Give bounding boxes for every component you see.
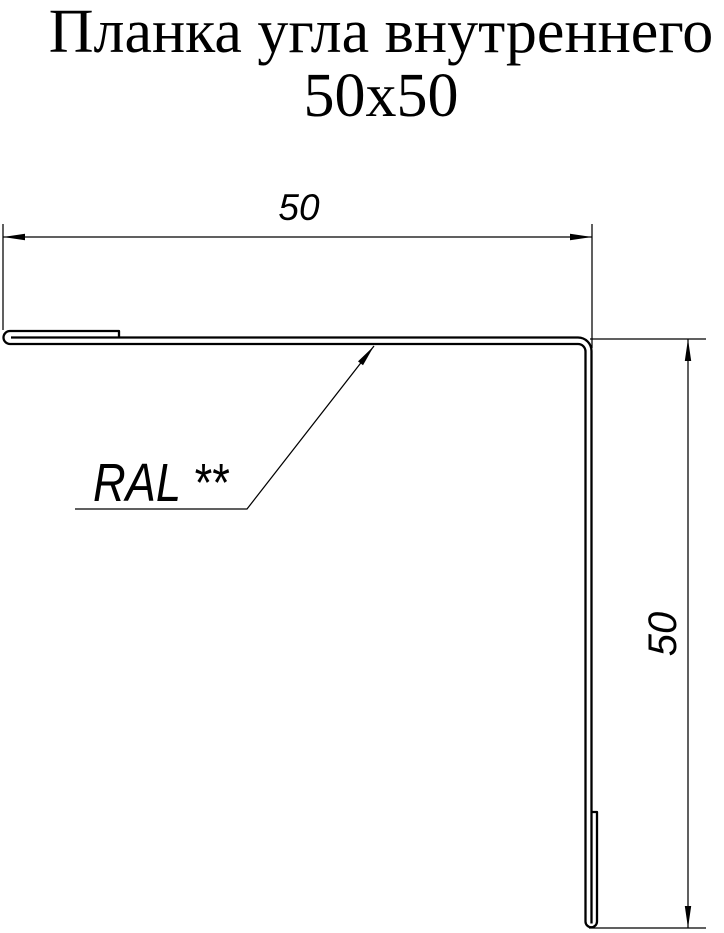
arrow-up-icon [685, 339, 691, 361]
drawing-sheet: Планка угла внутреннего 50х50 50 50 [0, 0, 724, 933]
profile-inner-contour [4, 331, 598, 927]
dimension-horizontal-value: 50 [278, 187, 320, 228]
profile-outer-contour [11, 338, 592, 924]
coating-callout: RAL ** [75, 346, 374, 513]
dimension-horizontal: 50 [3, 187, 592, 348]
leader-arrow-icon [358, 346, 374, 365]
arrow-right-icon [570, 234, 592, 240]
arrow-left-icon [3, 234, 25, 240]
technical-drawing-canvas: 50 50 RAL ** [0, 0, 724, 933]
dimension-vertical-value: 50 [641, 612, 685, 657]
arrow-down-icon [685, 906, 691, 928]
dimension-vertical: 50 [589, 339, 706, 928]
coating-label: RAL ** [93, 453, 230, 513]
corner-profile [4, 331, 598, 927]
